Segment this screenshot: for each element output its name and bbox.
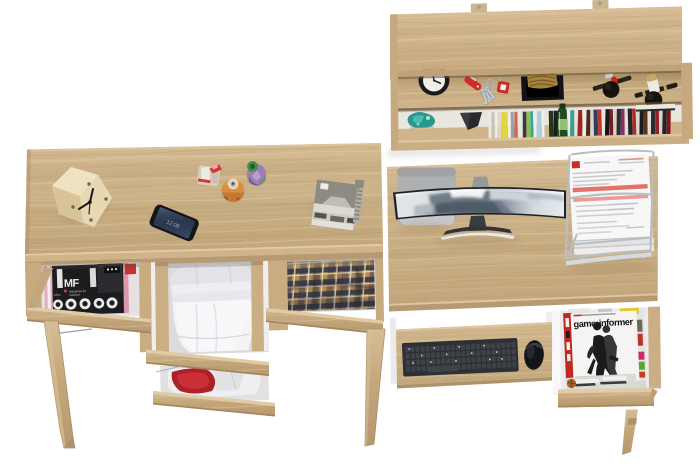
svg-text:material: material [69, 293, 80, 297]
svg-text:wNw: wNw [54, 293, 61, 297]
svg-text:MF: MF [64, 277, 80, 290]
